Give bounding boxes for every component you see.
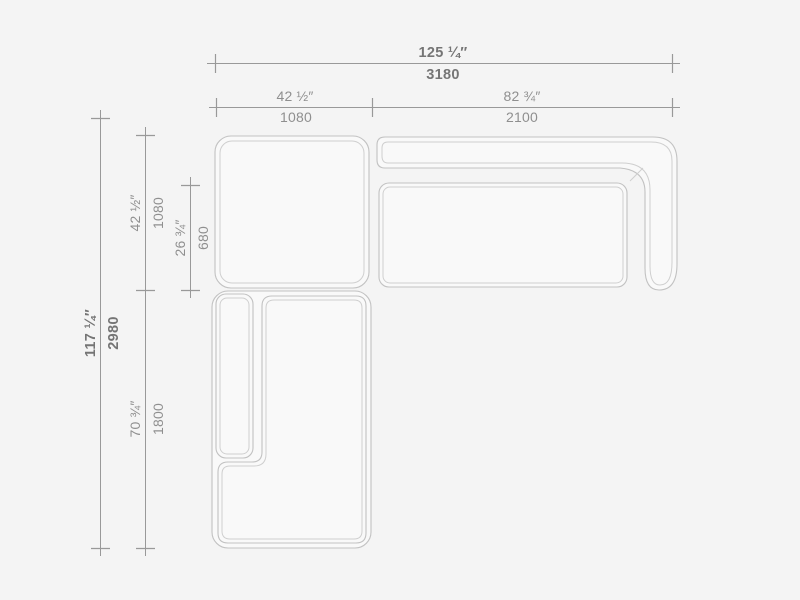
dim-label-right-section-inches: 82 ¾″ [503, 88, 540, 104]
dim-label-upper-depth-inches: 42 ½″ [127, 194, 143, 231]
dim-label-seat-depth-mm: 680 [195, 226, 211, 250]
drawing-background [0, 0, 800, 600]
dim-label-overall-depth-inches: 117 ¼″ [83, 309, 99, 357]
dim-label-overall-width-inches: 125 ¼″ [418, 45, 467, 61]
dim-label-overall-depth-mm: 2980 [106, 316, 122, 349]
dim-label-lower-depth-inches: 70 ¾″ [127, 400, 143, 437]
chaise-armrest-outline [216, 294, 253, 458]
corner-module-outline [215, 136, 369, 288]
dim-label-left-section-mm: 1080 [280, 109, 312, 125]
dim-label-seat-depth-inches: 26 ¾″ [172, 219, 188, 256]
right-module-seat-outline [379, 183, 627, 287]
drawing-canvas: 125 ¼″ 3180 117 ¼″ 2980 42 ½″ 1080 82 ¾″… [0, 0, 800, 600]
dim-label-overall-width-mm: 3180 [426, 67, 459, 83]
dim-label-upper-depth-mm: 1080 [150, 197, 166, 229]
dim-label-left-section-inches: 42 ½″ [276, 88, 313, 104]
dim-label-lower-depth-mm: 1800 [150, 403, 166, 435]
dim-label-right-section-mm: 2100 [506, 109, 538, 125]
sofa-dimension-drawing: 125 ¼″ 3180 117 ¼″ 2980 42 ½″ 1080 82 ¾″… [0, 0, 800, 600]
